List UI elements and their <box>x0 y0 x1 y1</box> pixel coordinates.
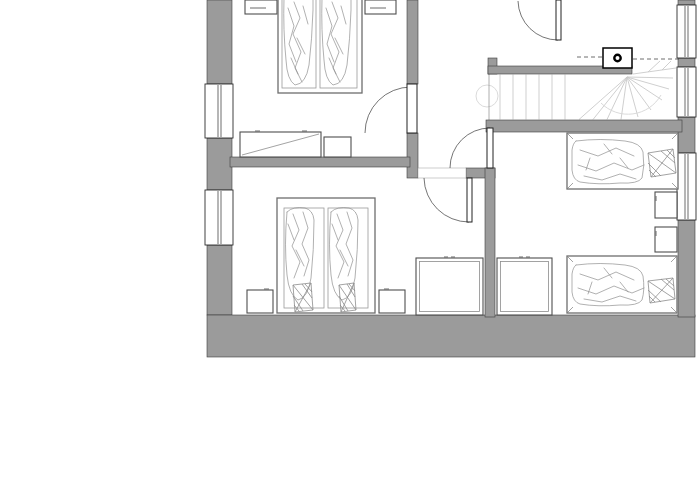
bedroom1-mattress-right <box>320 0 357 88</box>
wall-rooms-divider <box>485 168 495 317</box>
floor-plan <box>0 0 700 500</box>
stair-winder-tread <box>627 77 673 78</box>
wall-bedroom1-south <box>230 157 410 167</box>
bedroom3-wardrobe <box>497 258 552 315</box>
bedroom2-mattress-right <box>328 208 368 308</box>
window-left-1 <box>205 84 233 138</box>
stair-guide-circle <box>476 85 498 107</box>
wall-left-upper <box>207 0 232 84</box>
doorway-bedroom2-gap <box>418 168 466 178</box>
door-bedroom3-leaf <box>487 128 493 168</box>
wall-stairwell-south <box>486 120 682 132</box>
detector-symbol-box <box>603 48 632 68</box>
door-bedroom2-swing-arc <box>424 178 469 222</box>
bedroom2-nightstand-right <box>379 290 405 313</box>
wall-bottom <box>207 315 695 357</box>
door-bedroom1-swing-arc <box>365 87 411 133</box>
wall-left-lower <box>207 245 232 315</box>
stair-winder-tread <box>633 68 676 74</box>
bedroom2-wardrobe <box>416 258 483 315</box>
window-right-2 <box>677 67 696 117</box>
window-left-2 <box>205 190 233 245</box>
stair-winder-tread <box>627 77 669 89</box>
floor-plan-svg <box>0 0 700 500</box>
bedroom3-nightstand-1 <box>655 192 677 218</box>
wall-right-top <box>678 0 695 5</box>
bedroom2-nightstand-left <box>247 290 273 313</box>
bedroom1-side-table <box>324 137 351 157</box>
bedroom3-nightstand-2 <box>655 227 677 252</box>
wall-right-lower <box>678 220 695 317</box>
door-bedroom3-swing-arc <box>450 128 490 168</box>
wall-hall-west <box>407 133 418 178</box>
door-bedroom2-leaf <box>467 178 472 222</box>
bedroom1-nightstand-left <box>245 0 277 14</box>
wall-left-middle <box>207 138 232 190</box>
window-right-3 <box>677 153 696 220</box>
door-bedroom1-leaf <box>407 84 417 133</box>
wall-bedroom1-east <box>407 0 418 84</box>
bedroom2-mattress-left <box>284 208 324 308</box>
wall-right-pier1 <box>678 58 695 67</box>
door-upper-room-leaf <box>556 0 561 40</box>
door-upper-room-swing-arc <box>518 1 558 40</box>
stair-winder-tread <box>627 77 651 110</box>
bedroom1-nightstand-right <box>365 0 396 14</box>
window-right-1 <box>677 5 696 58</box>
